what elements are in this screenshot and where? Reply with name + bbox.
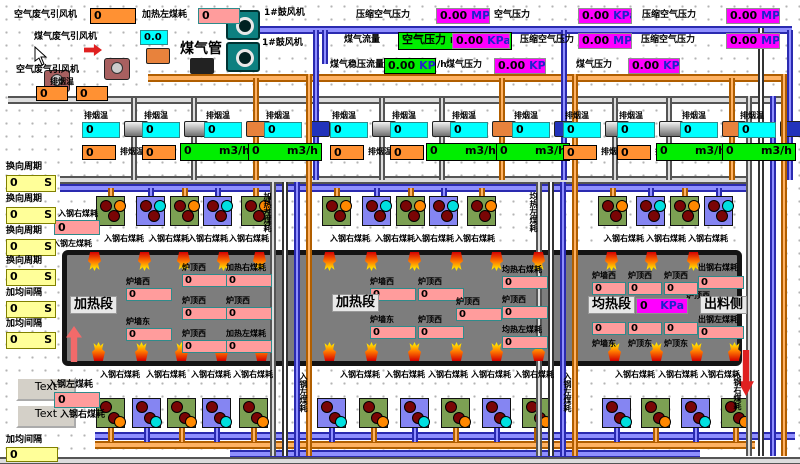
smoke-aux-value: 0 xyxy=(563,145,597,160)
smoke-temp-label: 排烟温 xyxy=(619,112,643,121)
zone-tag-heating-2: 加热段 xyxy=(332,294,379,312)
smoke-temp-label: 排烟温 xyxy=(740,112,764,121)
furnace-point-label: 炉顶西 xyxy=(502,294,526,305)
furnace-point-value: 0 xyxy=(126,328,172,341)
pressure-display: 0.00KPa xyxy=(494,58,546,74)
burner-consumption-label: 入钢右煤耗 xyxy=(385,371,425,380)
smoke-temp-value: 0 xyxy=(82,122,120,138)
furnace-point-label: 炉墙西 xyxy=(370,276,394,287)
smoke-temp-label: 排烟温 xyxy=(368,148,392,157)
burner-stub xyxy=(108,188,114,196)
furnace-point-label: 加热右煤耗 xyxy=(226,262,266,273)
burner-stub xyxy=(334,188,340,196)
burner-unit xyxy=(441,398,470,428)
smoke-temp-label: 排烟温 xyxy=(452,112,476,121)
burner-consumption-label: 入钢右煤耗 xyxy=(149,235,189,244)
gas-shutoff-valve[interactable] xyxy=(190,58,214,74)
burner-stub xyxy=(716,188,722,196)
burner-stub xyxy=(682,188,688,196)
burner-stub xyxy=(614,428,620,442)
pressure-label: 空气压力 xyxy=(494,11,530,21)
smoke-temp-value: 0 xyxy=(450,122,488,138)
burner-stub xyxy=(733,428,739,442)
burner-consumption-label: 入钢右煤耗 xyxy=(514,371,554,380)
gas-exhaust-fan-label: 煤气废气引风机 xyxy=(34,33,97,43)
flow-display: 0m3/h xyxy=(496,143,570,161)
smoke-temp-value: 0 xyxy=(264,122,302,138)
interval-label: 加均间隔 xyxy=(6,436,42,446)
pressure-display: 0.00MPa xyxy=(726,33,780,49)
flame-icon xyxy=(605,252,618,271)
burner-consumption-label: 入钢右煤耗 xyxy=(455,235,495,244)
air-exhaust-fan2-label: 空气废气引风机 xyxy=(16,66,79,76)
pressure-display: 0.00MPa xyxy=(578,33,632,49)
furnace-point-value: 0 xyxy=(182,274,228,287)
pressure-label: 煤气流量 xyxy=(344,36,380,46)
furnace-point-value: 0 xyxy=(182,340,228,353)
furnace-point-label: 炉墙东 xyxy=(370,314,394,325)
heat-left-consumption-value: 0 xyxy=(198,8,240,24)
hmi-furnace-screen: 空气废气引风机 0 加热左煤耗 0 煤气废气引风机 0.0 煤气管 空气废气引风… xyxy=(0,0,800,464)
smoke-temp-display: 0.0 xyxy=(140,30,168,45)
setpoint-label: 换向周期 xyxy=(6,257,42,267)
flow-display: 0m3/h xyxy=(180,143,254,161)
interval-setpoint[interactable]: 0 xyxy=(6,447,58,462)
burner-stub xyxy=(214,428,220,442)
burner-unit xyxy=(670,196,699,226)
smoke-temp-label: 排烟温 xyxy=(266,112,290,121)
furnace-point-label: 加热左煤耗 xyxy=(226,328,266,339)
flame-icon xyxy=(645,252,658,271)
blower2-fan-icon[interactable] xyxy=(226,42,260,72)
smoke-temp-value: 0 xyxy=(142,122,180,138)
smoke-temp-label: 排烟温 xyxy=(392,112,416,121)
burner-unit xyxy=(636,196,665,226)
furnace-point-value: 0 xyxy=(664,322,698,335)
pressure-label: 压缩空气压力 xyxy=(642,11,696,21)
furnace-point-label: 炉顶西 xyxy=(456,296,480,307)
burner-stub xyxy=(412,428,418,442)
burner-unit xyxy=(96,196,125,226)
setpoint-input[interactable]: 0S xyxy=(6,269,56,286)
furnace-point-label: 炉顶西 xyxy=(182,328,206,339)
burner-consumption-label: 入钢右煤耗 xyxy=(428,371,468,380)
pipe xyxy=(95,432,795,440)
setpoint-input[interactable]: 0S xyxy=(6,175,56,192)
furnace-point-label: 炉顶西 xyxy=(628,270,652,281)
flow-display: 0m3/h xyxy=(248,143,322,161)
smoke-temp-value: 0 xyxy=(738,122,776,138)
furnace-point-label: 炉顶西 xyxy=(226,295,250,306)
air-exhaust-fan-label: 空气废气引风机 xyxy=(14,11,77,21)
smoke-temp-label: 排烟温 xyxy=(565,112,589,121)
entry-left-consumption-value: 0 xyxy=(54,392,100,408)
furnace-point-value: 0 xyxy=(698,326,744,339)
gas-control-valve[interactable] xyxy=(146,48,170,64)
furnace-point-value: 0 xyxy=(126,288,172,301)
heat-left-consumption-label: 加热左煤耗 xyxy=(142,11,187,21)
burner-unit xyxy=(167,398,196,428)
burner-unit xyxy=(602,398,631,428)
burner-unit xyxy=(202,398,231,428)
burner-unit xyxy=(641,398,670,428)
entry-right-consumption-label: 入钢右煤耗 xyxy=(60,411,105,421)
setpoint-label: 加均间隔 xyxy=(6,289,42,299)
burner-stub xyxy=(215,188,221,196)
burner-unit xyxy=(681,398,710,428)
furnace-point-value: 0 xyxy=(182,307,228,320)
burner-consumption-label: 入钢右煤耗 xyxy=(688,235,728,244)
pressure-label: 煤气稳压流量 xyxy=(330,61,384,71)
burner-stub xyxy=(329,428,335,442)
bundle-pipe xyxy=(560,182,566,456)
furnace-point-value: 0 xyxy=(502,336,548,349)
riser-pipe xyxy=(666,98,672,180)
flame-icon xyxy=(323,342,336,361)
burner-stub xyxy=(374,188,380,196)
flame-icon xyxy=(450,252,463,271)
furnace-point-label: 炉墙东 xyxy=(592,338,616,349)
burner-stub xyxy=(108,428,114,442)
furnace-point-value: 0 xyxy=(226,274,272,287)
section-vertical-label: 入钢右煤耗 xyxy=(732,370,743,410)
burner-consumption-label: 入钢右煤耗 xyxy=(146,371,186,380)
furnace-point-label: 炉顶西 xyxy=(182,295,206,306)
burner-consumption-label: 入钢右煤耗 xyxy=(340,371,380,380)
pressure-label: 压缩空气压力 xyxy=(356,11,410,21)
furnace-point-value: 0 xyxy=(226,307,272,320)
furnace-point-label: 炉顶西 xyxy=(418,276,442,287)
flame-icon xyxy=(408,342,421,361)
flame-icon xyxy=(138,252,151,271)
burner-unit xyxy=(400,398,429,428)
smoke-aux-value: 0 xyxy=(390,145,424,160)
burner-stub xyxy=(494,428,500,442)
furnace-point-label: 均热右煤耗 xyxy=(502,264,542,275)
smoke-temp-value: 0 xyxy=(330,122,368,138)
burner-unit xyxy=(467,196,496,226)
setpoint-input[interactable]: 0S xyxy=(6,332,56,349)
burner-unit xyxy=(317,398,346,428)
furnace-point-value: 0 xyxy=(592,322,626,335)
burner-unit xyxy=(482,398,511,428)
burner-unit xyxy=(136,196,165,226)
burner-consumption-label: 入钢右煤耗 xyxy=(233,371,273,380)
burner-stub xyxy=(182,188,188,196)
burner-stub xyxy=(253,188,259,196)
riser-pipe xyxy=(439,98,445,180)
flame-icon xyxy=(408,252,421,271)
furnace-point-value: 0 xyxy=(628,282,662,295)
pressure-display: 0.00KPa xyxy=(452,33,510,49)
smoke-temp-value: 0 xyxy=(390,122,428,138)
gas-pipe-label: 煤气管 xyxy=(180,42,222,57)
furnace-point-label: 炉墙西 xyxy=(592,270,616,281)
smoke-temp-value: 0 xyxy=(680,122,718,138)
section-vertical-label: 入钢左煤耗 xyxy=(298,372,309,412)
furnace-point-value: 0 xyxy=(370,326,416,339)
pipe xyxy=(0,457,800,464)
furnace-point-value: 0 xyxy=(418,326,464,339)
pressure-display: 0.00KPa xyxy=(578,8,632,24)
furnace-point-label: 炉顶西 xyxy=(664,270,688,281)
flame-icon xyxy=(450,342,463,361)
zone-tag-heating-1: 加热段 xyxy=(70,296,117,314)
flow-display: 0m3/h xyxy=(722,143,796,161)
burner-consumption-label: 入钢右煤耗 xyxy=(330,235,370,244)
flame-icon xyxy=(323,252,336,271)
burner-stub xyxy=(371,428,377,442)
section-vertical-label: 均热左煤耗 xyxy=(528,192,539,232)
exhaust-fan-pump2-icon[interactable] xyxy=(104,58,130,80)
blower2-label: 1#鼓风机 xyxy=(262,39,303,49)
furnace-point-label: 炉墙西 xyxy=(126,276,150,287)
pipe xyxy=(95,441,755,449)
smoke-aux-value: 0 xyxy=(330,145,364,160)
smoke-aux-value: 0 xyxy=(617,145,651,160)
smoke-temp-label: 排烟温 xyxy=(332,112,356,121)
pipe xyxy=(322,30,328,64)
section-vertical-label: 加热左煤耗 xyxy=(262,192,273,232)
burner-stub xyxy=(479,188,485,196)
burner-unit xyxy=(170,196,199,226)
bundle-pipe xyxy=(294,182,300,456)
burner-stub xyxy=(179,428,185,442)
burner-stub xyxy=(148,188,154,196)
burner-consumption-label: 入钢右煤耗 xyxy=(615,371,655,380)
burner-unit xyxy=(203,196,232,226)
riser-pipe xyxy=(191,98,197,180)
pipe xyxy=(60,184,746,192)
pressure-display: 0.00MPa xyxy=(436,8,490,24)
furnace-point-label: 均热左煤耗 xyxy=(502,324,542,335)
smoke-temp-label: 排烟温 xyxy=(120,148,144,157)
burner-unit xyxy=(132,398,161,428)
pressure-label: 煤气压力 xyxy=(576,61,612,71)
right-bundle-pipe xyxy=(781,74,787,456)
pipe xyxy=(148,74,792,82)
setpoint-input[interactable]: 0S xyxy=(6,301,56,318)
bundle-pipe xyxy=(548,182,554,456)
burner-unit xyxy=(704,196,733,226)
flame-icon xyxy=(690,342,703,361)
burner-unit xyxy=(322,196,351,226)
burner-consumption-label: 入钢右煤耗 xyxy=(104,235,144,244)
smoke-temp-label: 排烟温 xyxy=(144,112,168,121)
furnace-point-value: 0 xyxy=(502,276,548,289)
burner-stub xyxy=(653,428,659,442)
furnace-point-label: 炉顶西 xyxy=(418,314,442,325)
burner-consumption-label: 入钢右煤耗 xyxy=(375,235,415,244)
smoke-temp-value: 0 xyxy=(617,122,655,138)
burner-unit xyxy=(362,196,391,226)
burner-stub xyxy=(441,188,447,196)
flame-icon xyxy=(92,342,105,361)
setpoint-label: 换向周期 xyxy=(6,195,42,205)
burner-unit xyxy=(396,196,425,226)
pressure-display: 0.00KPa xyxy=(628,58,680,74)
furnace-point-label: 炉墙东 xyxy=(126,316,150,327)
burner-unit xyxy=(598,196,627,226)
bundle-pipe xyxy=(282,182,288,456)
pressure-display: 0.00MPa xyxy=(726,8,780,24)
section-vertical-label: 入钢左煤耗 xyxy=(562,372,573,412)
smoke-aux-value: 0 xyxy=(82,145,116,160)
flow-direction-arrow xyxy=(84,44,102,56)
burner-stub xyxy=(144,428,150,442)
fan-value-2: 0 xyxy=(76,86,108,101)
air-exhaust-fan-value: 0 xyxy=(90,8,136,24)
pressure-label: 压缩空气压力 xyxy=(520,36,574,46)
furnace-point-value: 0 xyxy=(456,308,502,321)
flame-icon xyxy=(88,252,101,271)
entry-left-consumption-label: 入钢左煤耗 xyxy=(48,381,93,391)
smoke-temp-label: 排烟温 xyxy=(206,112,230,121)
burner-unit xyxy=(239,398,268,428)
burner-stub xyxy=(610,188,616,196)
entry-left-label: 入钢左煤耗 xyxy=(52,240,92,249)
riser-pipe xyxy=(612,98,618,180)
burner-stub xyxy=(693,428,699,442)
burner-unit xyxy=(429,196,458,226)
burner-unit xyxy=(359,398,388,428)
riser-pipe xyxy=(131,98,137,180)
pipe xyxy=(8,96,792,104)
burner-stub xyxy=(251,428,257,442)
burner-consumption-label: 入钢右煤耗 xyxy=(471,371,511,380)
furnace-pressure-display: 0KPa xyxy=(636,298,688,314)
burner-consumption-label: 入钢右煤耗 xyxy=(658,371,698,380)
setpoint-input[interactable]: 0S xyxy=(6,239,56,256)
zone-tag-soaking: 均热段 xyxy=(588,296,635,314)
smoke-temp-value: 0 xyxy=(204,122,242,138)
right-bundle-pipe xyxy=(758,28,764,456)
burner-stub xyxy=(648,188,654,196)
furnace-point-label: 出钢左煤耗 xyxy=(698,314,738,325)
setpoint-label: 加均间隔 xyxy=(6,320,42,330)
flame-icon xyxy=(365,252,378,271)
furnace-point-value: 0 xyxy=(592,282,626,295)
fan-value-1: 0 xyxy=(36,86,68,101)
burner-consumption-label: 入钢右煤耗 xyxy=(604,235,644,244)
flame-icon xyxy=(135,342,148,361)
blower1-label: 1#鼓风机 xyxy=(264,9,305,19)
smoke-temp-value: 0 xyxy=(563,122,601,138)
burner-consumption-label: 入钢右煤耗 xyxy=(229,235,269,244)
smoke-temp-label: 排烟温 xyxy=(682,112,706,121)
smoke-temp-value: 0 xyxy=(512,122,550,138)
flame-icon xyxy=(365,342,378,361)
gas-flow-display: 0.00KPa xyxy=(384,58,436,74)
pressure-label: 煤气压力 xyxy=(446,61,482,71)
burner-stub xyxy=(408,188,414,196)
setpoint-label: 换向周期 xyxy=(6,227,42,237)
burner-consumption-label: 入钢右煤耗 xyxy=(414,235,454,244)
furnace-point-label: 炉顶东 xyxy=(664,338,688,349)
flow-display: 0m3/h xyxy=(426,143,500,161)
discharge-side-tag: 出料侧 xyxy=(700,296,747,314)
pipe xyxy=(60,176,746,184)
furnace-point-value: 0 xyxy=(664,282,698,295)
entry-right-label: 入钢右煤耗 xyxy=(58,210,98,219)
furnace-point-value: 0 xyxy=(226,340,272,353)
pressure-label: 压缩空气压力 xyxy=(641,36,695,46)
mouse-cursor xyxy=(34,46,48,66)
burner-consumption-label: 入钢右煤耗 xyxy=(646,235,686,244)
setpoint-label: 换向周期 xyxy=(6,163,42,173)
smoke-aux-value: 0 xyxy=(142,145,176,160)
furnace-point-label: 出钢右煤耗 xyxy=(698,262,738,273)
furnace-point-label: 炉顶西 xyxy=(182,262,206,273)
smoke-temp-label: 排烟温 xyxy=(84,112,108,121)
furnace-point-value: 0 xyxy=(698,276,744,289)
furnace-point-value: 0 xyxy=(628,322,662,335)
burner-stub xyxy=(453,428,459,442)
pipe xyxy=(256,26,792,34)
setpoint-input[interactable]: 0S xyxy=(6,207,56,224)
furnace-point-label: 炉顶东 xyxy=(628,338,652,349)
flow-display: 0m3/h xyxy=(656,143,730,161)
smoke-temp-label: 排烟温 xyxy=(514,112,538,121)
flame-icon xyxy=(728,342,741,361)
riser-pipe xyxy=(379,98,385,180)
burner-consumption-label: 入钢右煤耗 xyxy=(188,235,228,244)
furnace-point-value: 0 xyxy=(502,306,548,319)
burner-consumption-label: 入钢右煤耗 xyxy=(100,371,140,380)
burner-consumption-label: 入钢右煤耗 xyxy=(191,371,231,380)
entry-right-value: 0 xyxy=(54,220,100,235)
